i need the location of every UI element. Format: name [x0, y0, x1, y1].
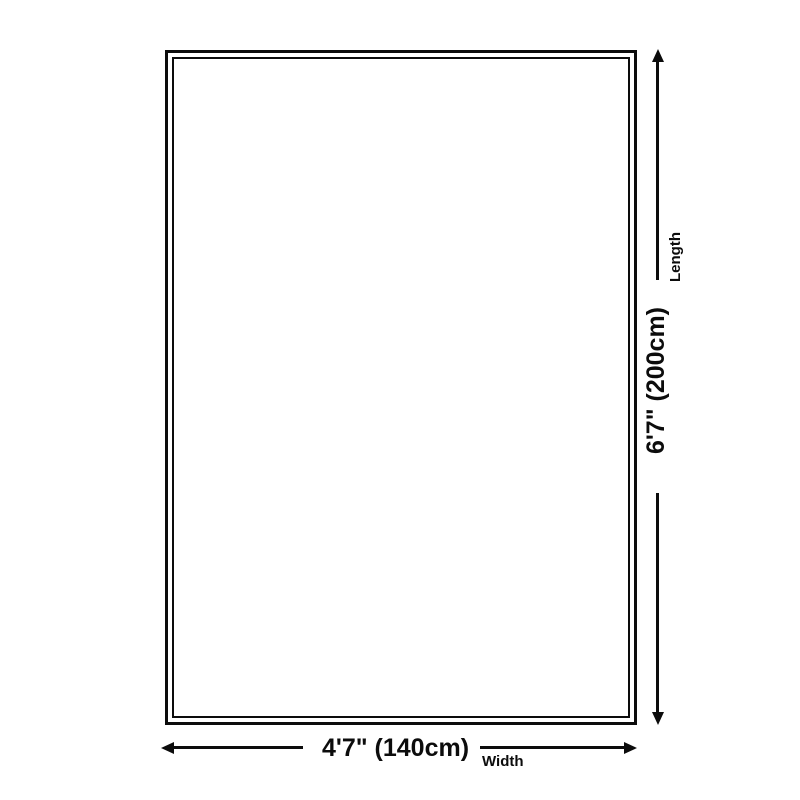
width-value: 4'7" (140cm)	[322, 735, 469, 763]
width-arrow-line-right	[480, 746, 625, 749]
dimension-diagram: Length 6'7" (200cm) 4'7" (140cm) Width	[0, 0, 800, 800]
product-outline	[165, 50, 637, 725]
arrow-right-icon	[624, 742, 637, 754]
length-arrow-line-lower	[656, 493, 659, 713]
width-axis-label: Width	[482, 753, 524, 771]
length-value: 6'7" (200cm)	[641, 307, 671, 454]
length-arrow-line-upper	[656, 60, 659, 280]
arrow-down-icon	[652, 712, 664, 725]
length-axis-label: Length	[667, 232, 685, 282]
width-arrow-line-left	[173, 746, 303, 749]
